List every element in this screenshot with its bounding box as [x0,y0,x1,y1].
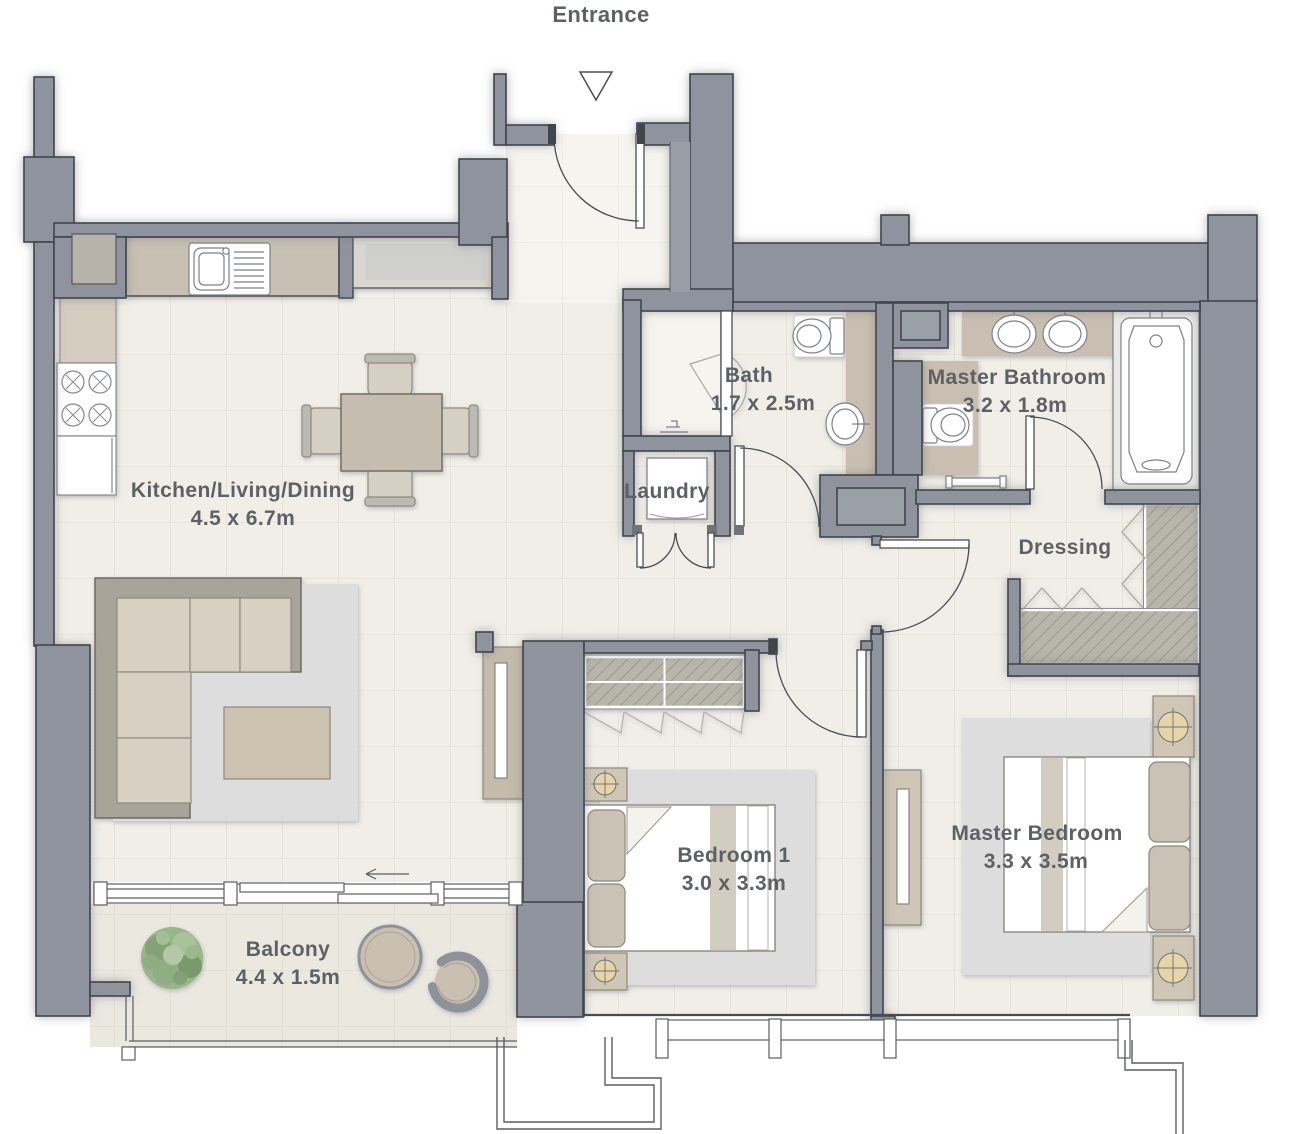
svg-text:1.7 x 2.5m: 1.7 x 2.5m [711,392,815,415]
svg-text:3.2 x 1.8m: 3.2 x 1.8m [963,394,1067,417]
svg-text:Dressing: Dressing [1018,536,1111,559]
svg-text:Entrance: Entrance [552,2,649,27]
svg-text:4.4 x 1.5m: 4.4 x 1.5m [236,966,340,989]
svg-text:4.5 x 6.7m: 4.5 x 6.7m [191,507,295,530]
svg-text:Bath: Bath [725,364,773,387]
svg-text:Laundry: Laundry [624,480,710,503]
svg-text:Balcony: Balcony [246,938,331,961]
svg-text:3.3 x 3.5m: 3.3 x 3.5m [984,850,1088,873]
svg-text:Master Bedroom: Master Bedroom [951,822,1122,845]
svg-text:Bedroom 1: Bedroom 1 [677,844,790,867]
svg-text:3.0 x 3.3m: 3.0 x 3.3m [682,872,786,895]
svg-text:Kitchen/Living/Dining: Kitchen/Living/Dining [131,479,355,502]
svg-text:Master Bathroom: Master Bathroom [928,366,1107,389]
